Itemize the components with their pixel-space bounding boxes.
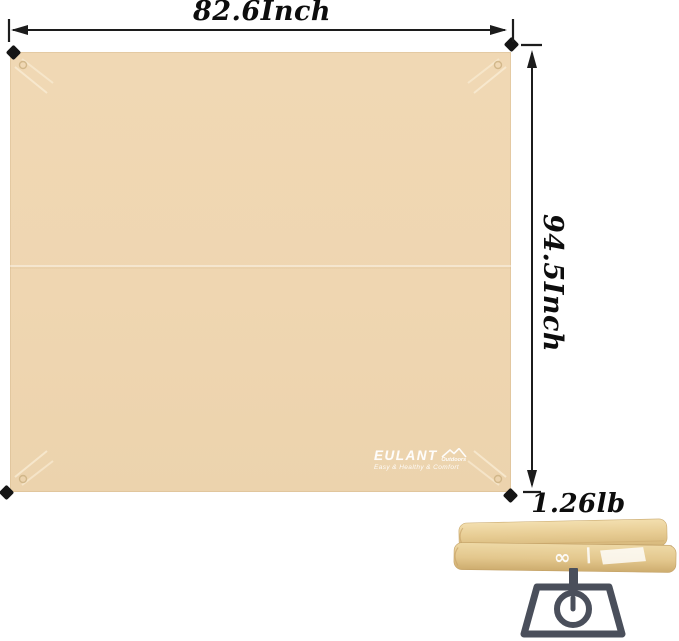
tarp-seam-decor — [10, 52, 511, 492]
product-dimension-diagram: EULANT Outdoors Easy & Healthy & Comfort… — [0, 0, 679, 641]
infinity-mark: ∞ — [554, 545, 571, 569]
corner-seam-top-left — [15, 59, 53, 93]
brand-name: EULANT — [374, 448, 438, 463]
height-dimension-arrow — [516, 40, 550, 500]
corner-seam-top-right — [468, 59, 506, 93]
brand-tagline: Easy & Healthy & Comfort — [374, 464, 490, 471]
brand-logo: EULANT Outdoors Easy & Healthy & Comfort — [374, 448, 490, 471]
folded-tarp-on-scale: ∞ — [450, 513, 679, 641]
width-dimension-arrow — [0, 14, 540, 48]
brand-sub-name: Outdoors — [441, 457, 466, 463]
tarp-flat-sheet: EULANT Outdoors Easy & Healthy & Comfort — [10, 52, 511, 492]
folded-tarp-bottom-layer: ∞ — [454, 542, 676, 572]
corner-seam-bottom-left — [15, 451, 53, 485]
